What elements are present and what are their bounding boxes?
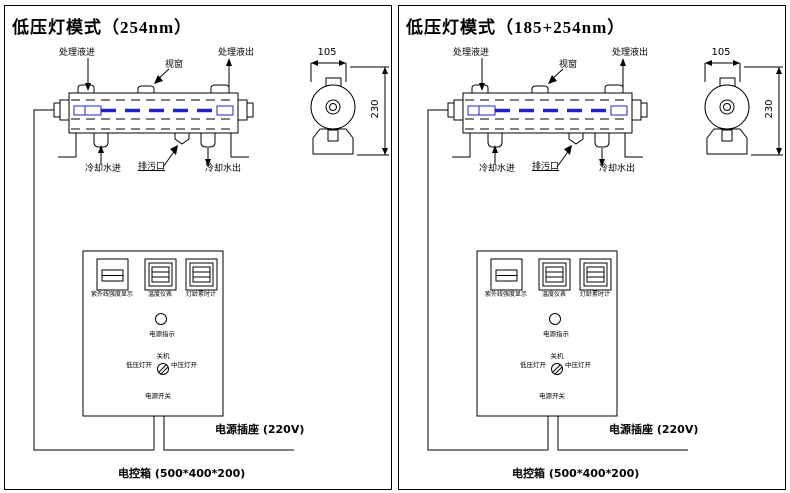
panel-185-254nm: 低压灯模式（185+254nm） [398,5,786,490]
dim-width-label: 105 [711,48,730,58]
power-switch-label: 电源开关 [145,393,171,400]
switch-off-label: 关机 [551,353,564,360]
diagram-artwork [399,6,785,489]
uv-chamber [448,85,647,157]
panel-254nm: 低压灯模式（254nm） [4,5,392,490]
power-indicator-label: 电源指示 [149,331,175,338]
inlet-label: 处理液进 [453,49,489,58]
switch-mid-label: 中压灯开 [171,362,197,369]
drain-label: 排污口 [532,163,559,172]
outlet-label: 处理液出 [612,49,648,58]
hour-counter-label: 灯龄累时计 [186,292,216,298]
switch-mid-label: 中压灯开 [565,362,591,369]
power-socket-label: 电源插座 (220V) [609,424,698,435]
control-box-size-label: 电控箱 (500*400*200) [118,468,245,479]
temperature-meter-label: 温度仪表 [148,292,172,298]
cooling-in-label: 冷却水进 [85,165,121,174]
power-socket-label: 电源插座 (220V) [215,424,304,435]
dim-height-label: 230 [371,99,381,118]
cooling-out-label: 冷却水出 [205,165,241,174]
hour-counter-label: 灯龄累时计 [580,292,610,298]
temperature-meter-label: 温度仪表 [542,292,566,298]
inlet-label: 处理液进 [59,49,95,58]
outlet-label: 处理液出 [218,49,254,58]
diagram-artwork [5,6,391,489]
window-label: 视窗 [165,61,183,70]
dim-width-label: 105 [317,48,336,58]
cooling-in-label: 冷却水进 [479,165,515,174]
drain-label: 排污口 [138,163,165,172]
power-switch-label: 电源开关 [539,393,565,400]
uv-chamber [54,85,253,157]
power-indicator-label: 电源指示 [543,331,569,338]
switch-low-label: 低压灯开 [520,362,546,369]
window-label: 视窗 [559,61,577,70]
control-box-size-label: 电控箱 (500*400*200) [512,468,639,479]
dim-height-label: 230 [765,99,775,118]
switch-low-label: 低压灯开 [126,362,152,369]
switch-off-label: 关机 [157,353,170,360]
uv-intensity-display-label: 紫外线强度显示 [485,292,527,298]
cooling-out-label: 冷却水出 [599,165,635,174]
uv-intensity-display-label: 紫外线强度显示 [91,292,133,298]
